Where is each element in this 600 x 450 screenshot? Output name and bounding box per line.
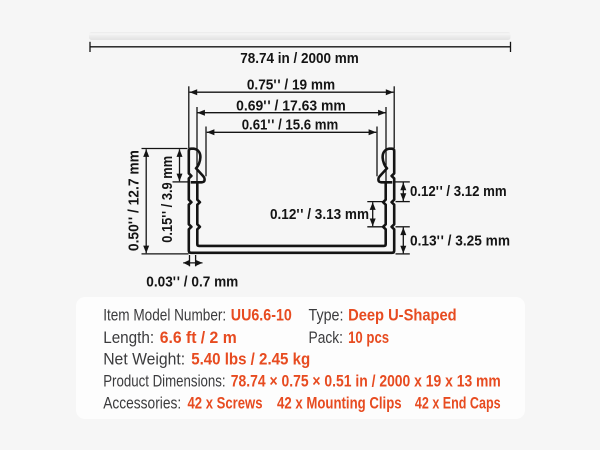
svg-text:78.74 in / 2000 mm: 78.74 in / 2000 mm bbox=[240, 50, 359, 67]
svg-text:0.75'' / 19 mm: 0.75'' / 19 mm bbox=[247, 76, 335, 93]
svg-text:Item Model Number:: Item Model Number: bbox=[103, 306, 226, 325]
svg-text:0.15'' / 3.9 mm: 0.15'' / 3.9 mm bbox=[159, 156, 176, 243]
svg-text:0.50'' / 12.7 mm: 0.50'' / 12.7 mm bbox=[126, 150, 143, 251]
svg-text:Net Weight:: Net Weight: bbox=[103, 350, 185, 369]
svg-text:42 x Screws: 42 x Screws bbox=[188, 394, 263, 413]
svg-text:Accessories:: Accessories: bbox=[103, 394, 181, 413]
svg-text:42 x End Caps: 42 x End Caps bbox=[415, 394, 501, 413]
svg-text:Length:: Length: bbox=[103, 328, 154, 347]
svg-text:Pack:: Pack: bbox=[309, 328, 344, 347]
svg-text:42 x Mounting Clips: 42 x Mounting Clips bbox=[277, 394, 402, 413]
svg-text:0.03'' / 0.7 mm: 0.03'' / 0.7 mm bbox=[146, 274, 238, 291]
svg-text:0.69'' / 17.63 mm: 0.69'' / 17.63 mm bbox=[236, 98, 346, 115]
svg-text:Product Dimensions:: Product Dimensions: bbox=[103, 372, 225, 391]
svg-text:Type:: Type: bbox=[309, 306, 344, 325]
svg-text:0.12'' / 3.12 mm: 0.12'' / 3.12 mm bbox=[410, 183, 507, 200]
svg-text:0.61'' / 15.6 mm: 0.61'' / 15.6 mm bbox=[242, 116, 339, 133]
svg-text:UU6.6-10: UU6.6-10 bbox=[231, 306, 292, 325]
svg-text:0.12'' / 3.13 mm: 0.12'' / 3.13 mm bbox=[270, 206, 369, 223]
svg-text:0.13'' / 3.25 mm: 0.13'' / 3.25 mm bbox=[410, 232, 510, 249]
svg-text:5.40 lbs / 2.45 kg: 5.40 lbs / 2.45 kg bbox=[191, 350, 310, 369]
svg-text:10 pcs: 10 pcs bbox=[348, 328, 389, 347]
svg-text:78.74 × 0.75 × 0.51 in / 2000: 78.74 × 0.75 × 0.51 in / 2000 x 19 x 13 … bbox=[231, 372, 501, 391]
svg-text:Deep U-Shaped: Deep U-Shaped bbox=[348, 306, 457, 325]
svg-text:6.6 ft / 2 m: 6.6 ft / 2 m bbox=[160, 328, 237, 347]
